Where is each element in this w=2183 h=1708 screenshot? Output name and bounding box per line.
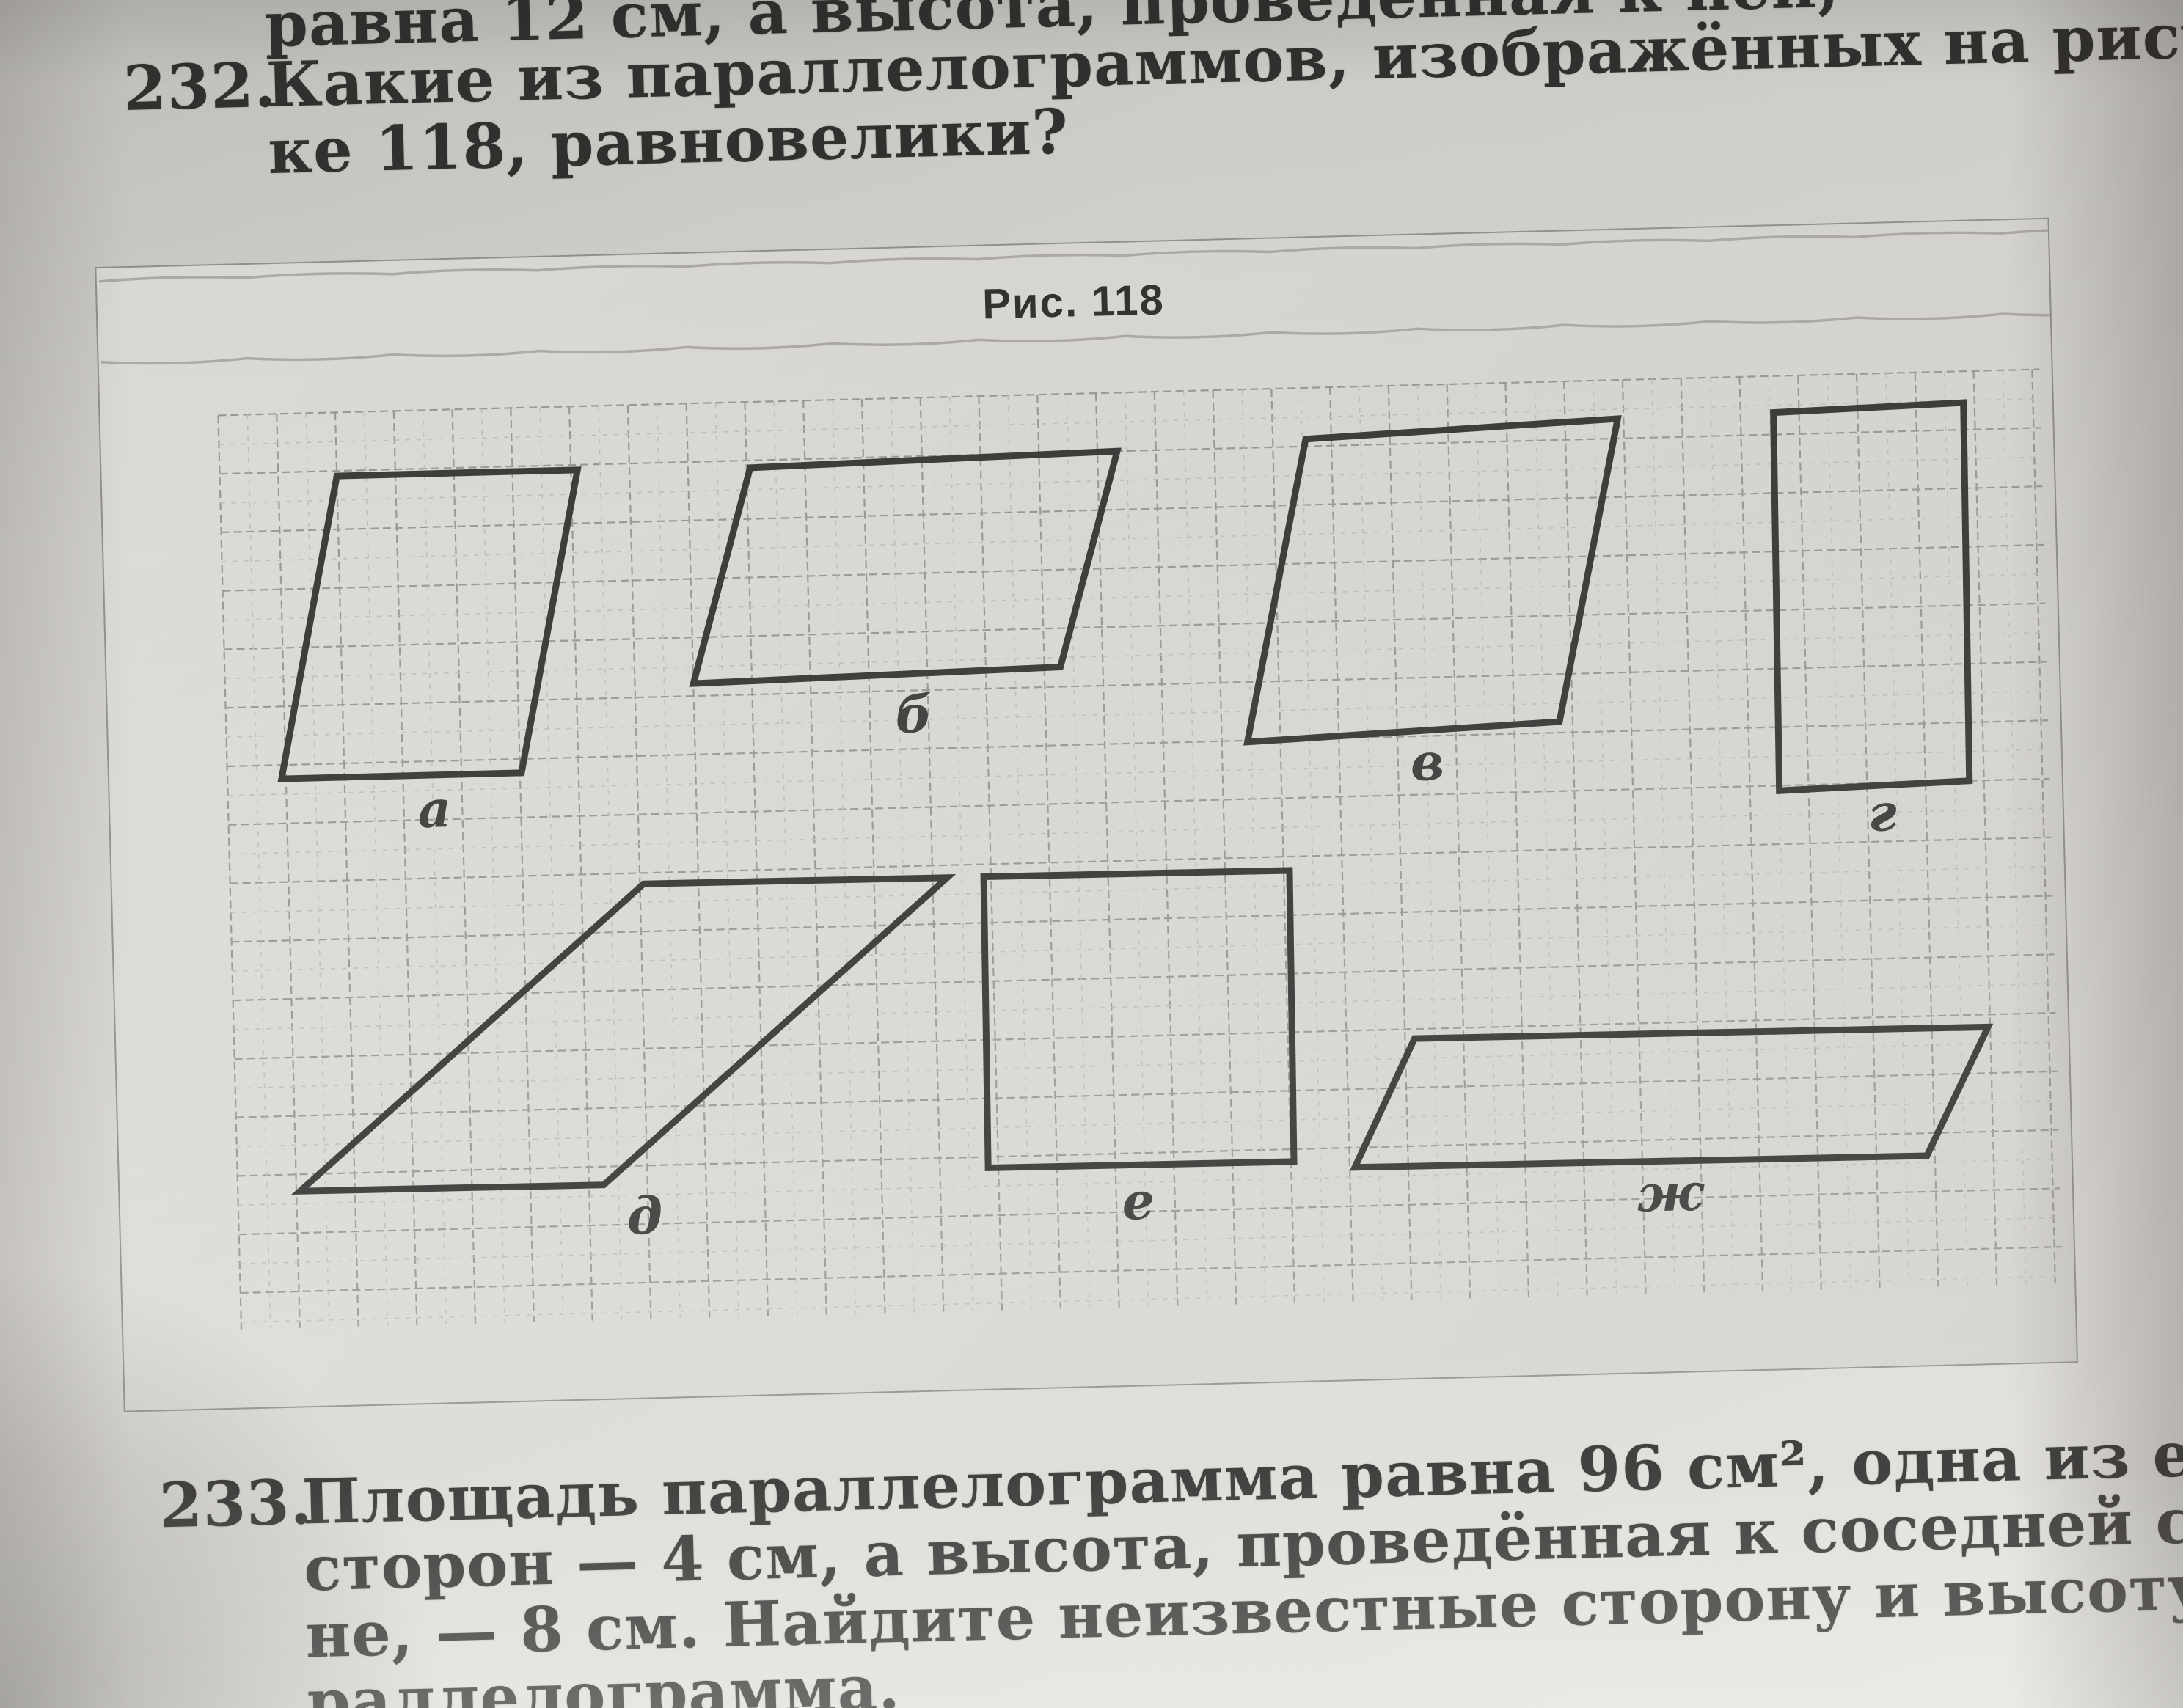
grid-line [803,400,827,1314]
grid-line-minor [1652,379,1675,1293]
figure-118-panel: Рис. 118 абвгдеж [95,218,2078,1412]
grid-line-minor [1477,384,1500,1297]
grid-line [232,895,2053,942]
grid-line [219,428,2041,474]
problem-233-number: 233. [158,1468,313,1539]
parallelogram-б [688,451,1123,683]
grid-line-minor [225,633,2047,679]
grid-line-minor [891,398,915,1312]
parallelogram-г [1769,403,1972,791]
grid-line [223,545,2044,591]
grid-line-minor [774,401,797,1315]
grid-line [862,399,885,1313]
grid-line-minor [1535,382,1558,1296]
page-content: равна 12 см, а высота, проведённая к ней… [0,0,2183,1708]
grid-line-minor [224,574,2045,620]
grid-line-minor [222,516,2044,562]
parallelogram-а [274,470,585,779]
grid-line-minor [247,414,271,1328]
grid-line [745,402,768,1316]
problem-232-number: 232. [123,51,277,122]
grid-line-minor [241,1276,2063,1322]
grid-line-minor [1184,391,1207,1305]
grid-line-minor [230,808,2051,854]
grid-line-minor [233,925,2054,971]
shape-label-д: д [626,1186,664,1247]
grid-line-minor [716,403,739,1316]
grid-line [1564,381,1587,1295]
shape-label-г: г [1867,782,1897,843]
grid-line-minor [1359,386,1383,1300]
textbook-photo: равна 12 см, а высота, проведённая к ней… [0,0,2183,1708]
grid-line-minor [221,457,2042,503]
shape-label-а: а [417,779,452,840]
grid-line [628,405,651,1319]
grid-line [235,1013,2056,1059]
grid-line [1447,384,1471,1298]
grid-line-minor [237,1101,2058,1147]
grid-line [1681,378,1705,1292]
grid-line-minor [1067,394,1090,1308]
grid-line-minor [1301,388,1324,1302]
grid-line-minor [219,398,2040,444]
shape-label-в: в [1410,732,1445,793]
grid-line [233,954,2055,1000]
grid-line-minor [833,400,856,1313]
grid-line [218,415,241,1329]
shape-label-е: е [1122,1171,1155,1232]
grid-line [1505,383,1529,1297]
grid-line [238,1130,2059,1176]
grid-line [1037,395,1061,1308]
grid-line [224,604,2046,650]
grid-line [1798,375,1821,1289]
grid-line-minor [1008,395,1031,1309]
grid-line-minor [1711,378,1734,1291]
parallelogram-в [1240,419,1626,742]
grid-line [979,396,1002,1310]
shape-label-ж: ж [1636,1162,1705,1224]
grid-line [1330,387,1353,1301]
grid-line [1739,377,1763,1291]
grid-line [687,403,710,1317]
grid-line [222,486,2043,532]
grid-line [1389,386,1412,1300]
grid-line [218,370,2039,416]
grid-line-minor [1242,389,1265,1303]
grid-line [921,397,944,1311]
grid-line-minor [1125,392,1149,1306]
paper-edge-wavy-line [99,227,2077,282]
problem-233-text: Площадь параллелограмма равна 96 см², од… [301,1416,2183,1708]
shape-label-б: б [894,684,932,745]
grid-line [1974,371,1997,1285]
grid-line [236,1071,2058,1118]
grid-line [1155,392,1178,1305]
figure-svg: абвгдеж [96,219,2077,1411]
paper-edge-wavy-line [101,310,2077,365]
grid-line-minor [950,397,973,1311]
grid-line [1213,390,1237,1304]
grid-line-minor [235,1042,2057,1088]
grid-line-minor [657,404,681,1318]
grid-line-minor [1827,375,1851,1289]
grid-line [1623,380,1646,1294]
parallelogram-д [293,876,955,1192]
grid-line [2032,370,2055,1283]
grid-line-minor [1418,385,1441,1299]
grid-line-minor [227,691,2048,737]
grid-line [241,1247,2062,1293]
problem-233: 233. Площадь параллелограмма равна 96 см… [158,1416,2183,1708]
grid-line-minor [2003,370,2026,1284]
grid-line [226,661,2047,708]
